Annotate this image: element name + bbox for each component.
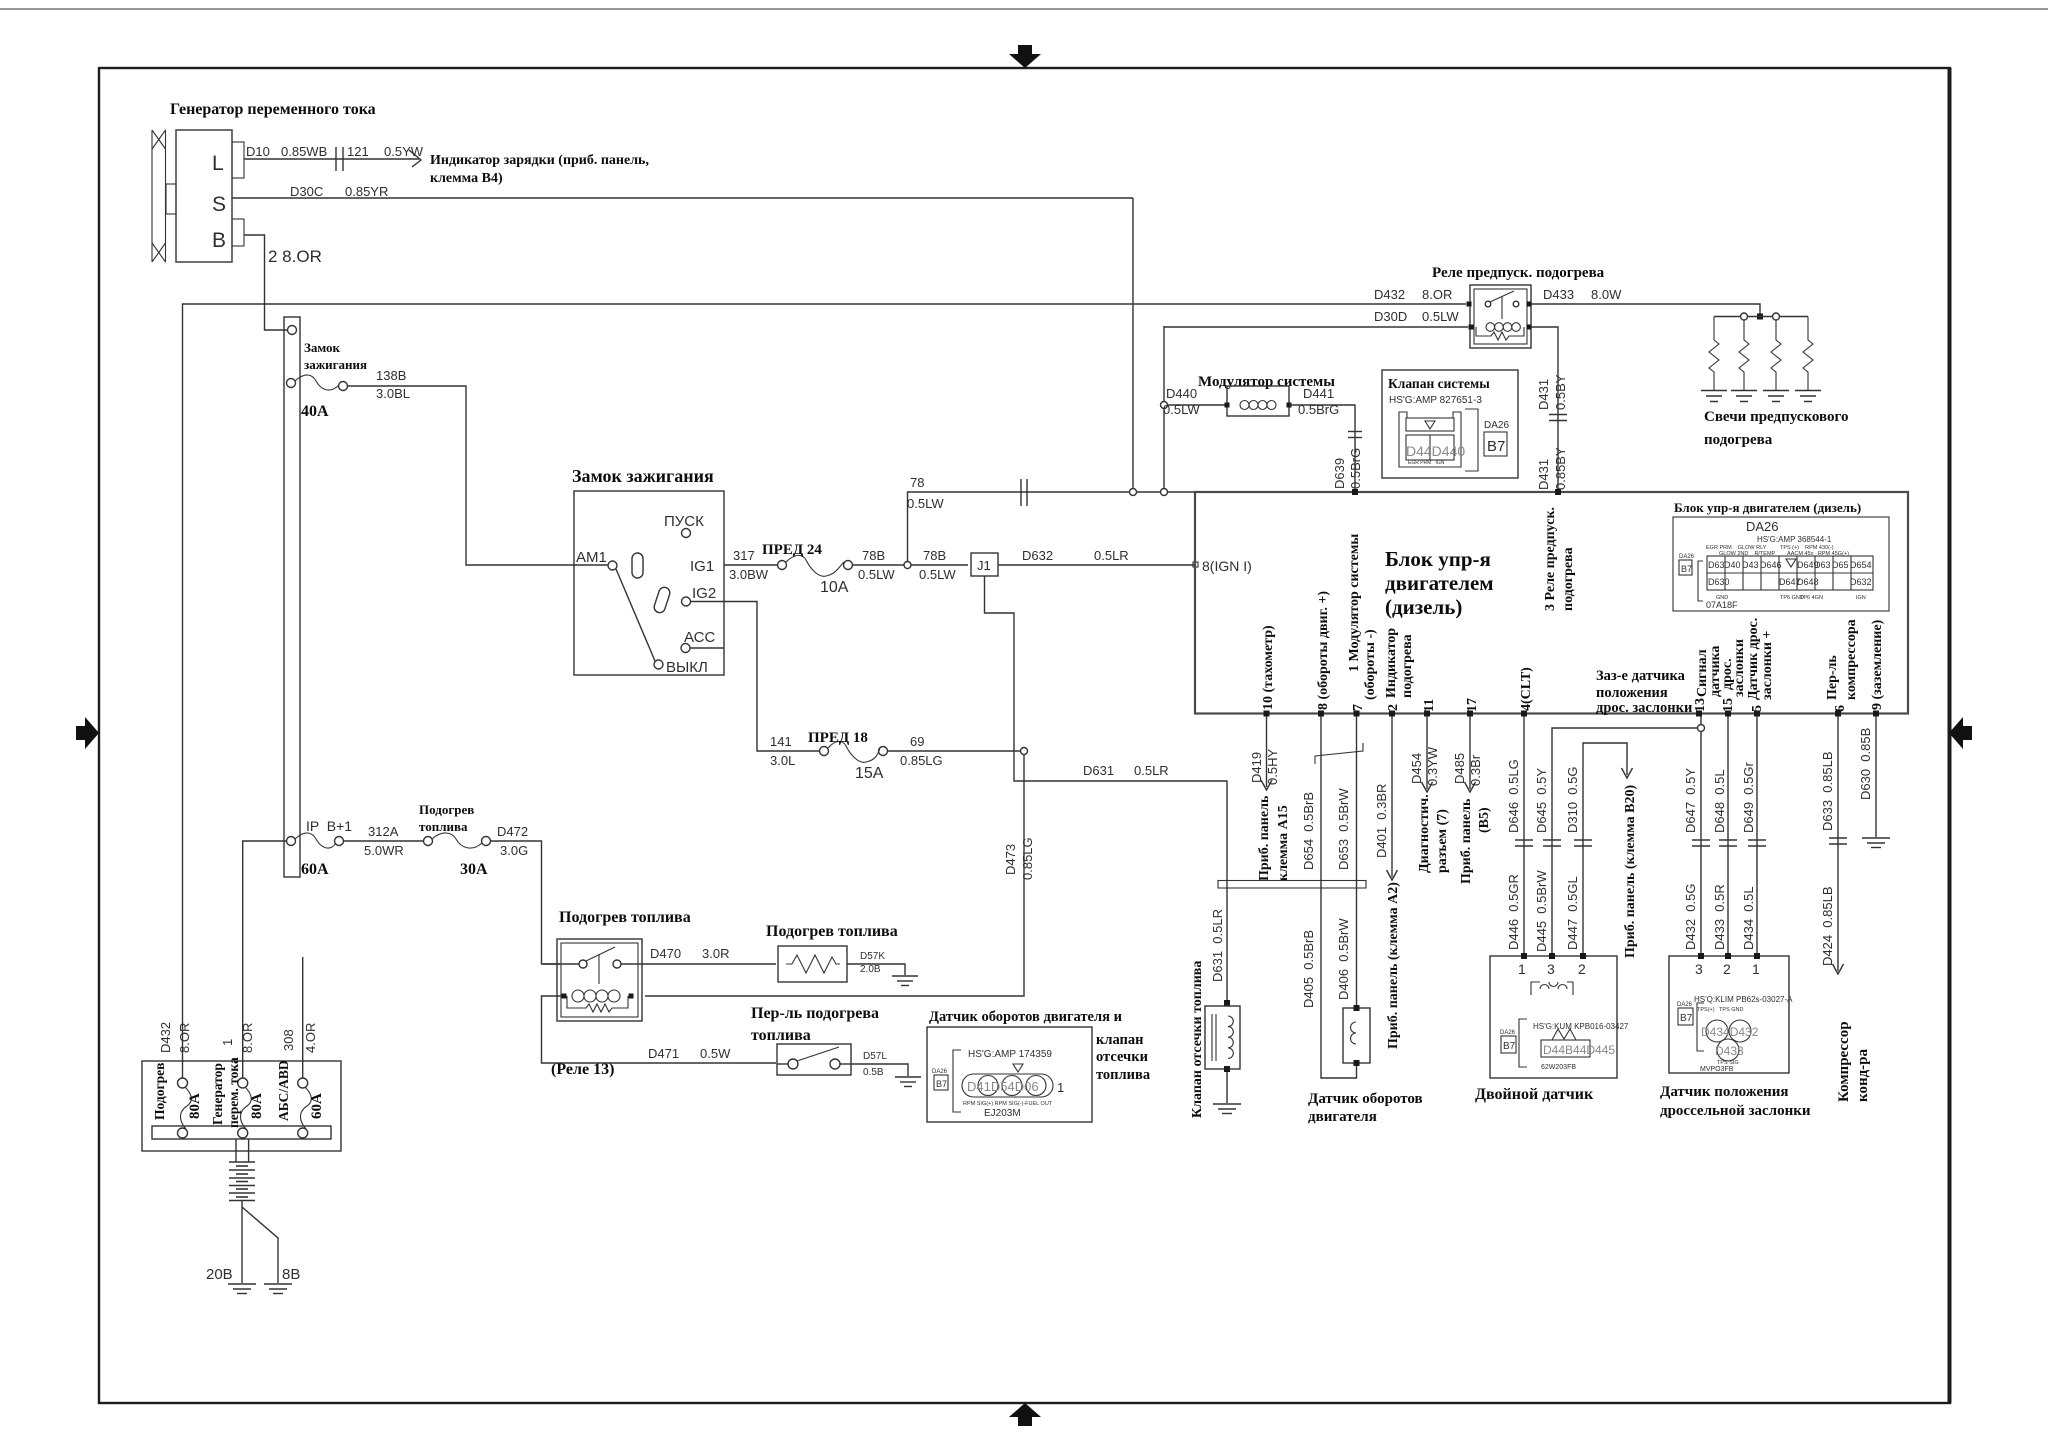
svg-text:D633 0.85LB: D633 0.85LB xyxy=(1820,751,1835,831)
svg-text:D472: D472 xyxy=(497,824,528,839)
svg-text:D649 0.5Gr: D649 0.5Gr xyxy=(1741,762,1756,833)
svg-text:Приб. панель (клемма B20): Приб. панель (клемма B20) xyxy=(1623,785,1638,958)
svg-text:(обороты -): (обороты -) xyxy=(1363,629,1378,700)
svg-text:Пер-ль: Пер-ль xyxy=(1825,655,1840,700)
svg-text:D431: D431 xyxy=(1536,379,1551,410)
svg-text:D631 0.5LR: D631 0.5LR xyxy=(1210,909,1225,982)
svg-text:D447 0.5GL: D447 0.5GL xyxy=(1565,876,1580,950)
svg-text:EGR PRM IGN: EGR PRM IGN xyxy=(1408,460,1445,466)
svg-text:HS'G:AMP 174359: HS'G:AMP 174359 xyxy=(968,1049,1052,1060)
svg-text:Датчик положения: Датчик положения xyxy=(1660,1084,1789,1100)
svg-text:DA26: DA26 xyxy=(932,1069,948,1075)
svg-text:0.5LW: 0.5LW xyxy=(858,567,895,582)
svg-text:6: 6 xyxy=(1833,705,1848,712)
svg-text:Индикатор: Индикатор xyxy=(1384,628,1399,698)
svg-text:1: 1 xyxy=(1752,961,1760,977)
svg-text:IG2: IG2 xyxy=(692,585,716,602)
svg-text:3.0G: 3.0G xyxy=(500,843,528,858)
svg-text:Двойной датчик: Двойной датчик xyxy=(1475,1086,1594,1103)
svg-text:Приб. панель (клемма A2): Приб. панель (клемма A2) xyxy=(1386,882,1401,1049)
svg-text:2: 2 xyxy=(1386,704,1401,711)
svg-text:АСС: АСС xyxy=(684,629,716,646)
svg-text:D63: D63 xyxy=(1708,560,1725,570)
svg-text:Клапан отсечки топлива: Клапан отсечки топлива xyxy=(1190,961,1205,1118)
svg-text:топлива: топлива xyxy=(751,1027,811,1044)
svg-text:4.OR: 4.OR xyxy=(303,1023,318,1053)
svg-text:D30C: D30C xyxy=(290,184,323,199)
svg-text:D432: D432 xyxy=(158,1022,173,1053)
svg-text:40A: 40A xyxy=(301,403,329,420)
svg-text:7: 7 xyxy=(1351,704,1366,711)
svg-text:подогрева: подогрева xyxy=(1704,432,1773,448)
svg-text:отсечки: отсечки xyxy=(1096,1049,1148,1065)
svg-text:10A: 10A xyxy=(820,579,849,596)
svg-text:Датчик оборотов: Датчик оборотов xyxy=(1308,1091,1423,1107)
svg-text:HS'G:KUM KPB016-03427: HS'G:KUM KPB016-03427 xyxy=(1533,1022,1629,1031)
svg-text:0.5LW: 0.5LW xyxy=(919,567,956,582)
svg-text:ПРЕД 24: ПРЕД 24 xyxy=(762,542,822,558)
svg-text:60A: 60A xyxy=(309,1093,325,1119)
svg-text:Подогрев топлива: Подогрев топлива xyxy=(559,909,691,926)
svg-text:D432 0.5G: D432 0.5G xyxy=(1683,884,1698,951)
svg-text:138B: 138B xyxy=(376,368,406,383)
svg-text:D440: D440 xyxy=(1166,386,1197,401)
svg-text:Генератор: Генератор xyxy=(210,1063,225,1125)
svg-text:1: 1 xyxy=(220,1039,235,1046)
svg-text:положения: положения xyxy=(1596,685,1668,701)
svg-text:D445 0.5BrW: D445 0.5BrW xyxy=(1534,870,1549,952)
svg-text:0.5LW: 0.5LW xyxy=(1422,309,1459,324)
svg-text:RPM SIG(+) RPM SIG(-)-FUEL OUT: RPM SIG(+) RPM SIG(-)-FUEL OUT xyxy=(963,1101,1053,1107)
svg-text:Заз-е датчика: Заз-е датчика xyxy=(1596,668,1686,684)
svg-text:дрос. заслонки: дрос. заслонки xyxy=(1596,700,1692,716)
svg-text:0.5HY: 0.5HY xyxy=(1265,749,1280,785)
svg-text:80A: 80A xyxy=(249,1093,265,1119)
svg-text:Подогрев топлива: Подогрев топлива xyxy=(766,923,898,940)
svg-text:Замок зажигания: Замок зажигания xyxy=(572,466,714,486)
svg-text:D433: D433 xyxy=(1715,1044,1744,1058)
svg-text:Индикатор зарядки (приб. панел: Индикатор зарядки (приб. панель, xyxy=(430,153,649,168)
svg-text:9 (заземление): 9 (заземление) xyxy=(1870,619,1885,710)
svg-text:D419: D419 xyxy=(1249,752,1264,783)
svg-text:3.0L: 3.0L xyxy=(770,753,795,768)
svg-text:D653 0.5BrW: D653 0.5BrW xyxy=(1336,788,1351,870)
svg-text:10 (тахометр): 10 (тахометр) xyxy=(1261,625,1276,710)
svg-text:разъем (7): разъем (7) xyxy=(1435,809,1450,873)
svg-text:0.85WB: 0.85WB xyxy=(281,144,327,159)
svg-text:DA26: DA26 xyxy=(1484,420,1509,431)
svg-text:15A: 15A xyxy=(855,765,884,782)
svg-text:D434D432: D434D432 xyxy=(1701,1025,1759,1039)
svg-text:D44B44D445: D44B44D445 xyxy=(1543,1043,1615,1057)
svg-text:перем. тока: перем. тока xyxy=(226,1057,241,1128)
svg-text:78B: 78B xyxy=(923,548,946,563)
svg-text:D10: D10 xyxy=(246,144,270,159)
svg-text:клапан: клапан xyxy=(1096,1032,1144,1048)
svg-text:3.0R: 3.0R xyxy=(702,946,729,961)
svg-text:D446 0.5GR: D446 0.5GR xyxy=(1506,874,1521,950)
svg-text:D63: D63 xyxy=(1814,560,1831,570)
svg-text:S: S xyxy=(212,193,226,216)
svg-text:Приб. панель: Приб. панель xyxy=(1257,795,1272,881)
svg-text:0.5BrG: 0.5BrG xyxy=(1348,448,1363,489)
svg-text:8.OR: 8.OR xyxy=(1422,287,1452,302)
svg-text:топлива: топлива xyxy=(419,819,468,834)
svg-text:0.85LG: 0.85LG xyxy=(900,753,943,768)
svg-text:D654: D654 xyxy=(1850,560,1872,570)
svg-text:0.5LW: 0.5LW xyxy=(1163,402,1200,417)
svg-text:DA26: DA26 xyxy=(1746,519,1779,534)
svg-text:07A18F: 07A18F xyxy=(1706,600,1738,610)
svg-text:312A: 312A xyxy=(368,824,399,839)
svg-text:B7: B7 xyxy=(1487,438,1505,455)
svg-text:0.85YR: 0.85YR xyxy=(345,184,388,199)
svg-text:IGN: IGN xyxy=(1856,595,1866,601)
svg-text:подогрева: подогрева xyxy=(1400,634,1415,698)
svg-text:0.5LR: 0.5LR xyxy=(1134,763,1169,778)
svg-text:D647 0.5Y: D647 0.5Y xyxy=(1683,768,1698,833)
svg-text:1: 1 xyxy=(1518,961,1526,977)
svg-text:D648: D648 xyxy=(1797,577,1819,587)
svg-text:69: 69 xyxy=(910,734,924,749)
svg-text:EJ203M: EJ203M xyxy=(984,1108,1021,1119)
svg-text:D485: D485 xyxy=(1452,753,1467,784)
svg-text:TPS(+) TPS GND: TPS(+) TPS GND xyxy=(1697,1007,1744,1013)
svg-text:78: 78 xyxy=(910,475,924,490)
svg-text:D40: D40 xyxy=(1724,560,1741,570)
svg-text:D470: D470 xyxy=(650,946,681,961)
svg-text:D431: D431 xyxy=(1536,459,1551,490)
svg-text:D648 0.5L: D648 0.5L xyxy=(1712,769,1727,833)
svg-text:D432: D432 xyxy=(1374,287,1405,302)
svg-text:15: 15 xyxy=(1721,698,1736,712)
svg-text:17: 17 xyxy=(1465,698,1480,712)
svg-text:0.5LW: 0.5LW xyxy=(907,496,944,511)
svg-text:D406 0.5BrW: D406 0.5BrW xyxy=(1336,918,1351,1000)
svg-text:308: 308 xyxy=(281,1029,296,1051)
svg-text:Подогрев: Подогрев xyxy=(419,802,474,817)
svg-text:3 Реле предпуск.: 3 Реле предпуск. xyxy=(1543,507,1558,611)
svg-text:D471: D471 xyxy=(648,1046,679,1061)
svg-text:Свечи предпускового: Свечи предпускового xyxy=(1704,409,1848,425)
svg-text:0.85BY: 0.85BY xyxy=(1553,447,1568,490)
svg-text:D434 0.5L: D434 0.5L xyxy=(1741,886,1756,950)
svg-text:HS'G:AMP 368544-1: HS'G:AMP 368544-1 xyxy=(1757,535,1832,544)
svg-text:141: 141 xyxy=(770,734,792,749)
svg-text:8 (обороты двиг. +): 8 (обороты двиг. +) xyxy=(1316,591,1331,710)
svg-text:0.5B: 0.5B xyxy=(863,1067,884,1078)
svg-text:30A: 30A xyxy=(460,861,488,878)
svg-text:B7: B7 xyxy=(936,1079,947,1089)
svg-text:3.0BL: 3.0BL xyxy=(376,386,410,401)
svg-text:D441: D441 xyxy=(1303,386,1334,401)
svg-text:TP6 4GN: TP6 4GN xyxy=(1800,595,1823,601)
svg-text:3: 3 xyxy=(1547,961,1555,977)
svg-text:8.0W: 8.0W xyxy=(1591,287,1622,302)
svg-text:топлива: топлива xyxy=(1096,1067,1151,1083)
svg-text:0.85LG: 0.85LG xyxy=(1020,837,1035,880)
svg-text:8B: 8B xyxy=(282,1266,300,1283)
svg-text:0.5BY: 0.5BY xyxy=(1553,374,1568,410)
svg-text:0.3YW: 0.3YW xyxy=(1425,746,1440,786)
svg-text:13: 13 xyxy=(1693,698,1708,712)
svg-text:4(CLT): 4(CLT) xyxy=(1519,667,1534,711)
svg-text:Диагностич.: Диагностич. xyxy=(1417,794,1432,873)
svg-text:D632: D632 xyxy=(1850,577,1872,587)
svg-text:D433: D433 xyxy=(1543,287,1574,302)
svg-text:зажигания: зажигания xyxy=(304,357,367,372)
svg-text:АМ1: АМ1 xyxy=(576,549,607,566)
svg-text:Блок упр-я двигателем (дизель): Блок упр-я двигателем (дизель) xyxy=(1674,500,1861,515)
svg-text:Подогрев: Подогрев xyxy=(152,1063,167,1120)
svg-text:Компрессор: Компрессор xyxy=(1836,1021,1852,1102)
svg-text:ПУСК: ПУСК xyxy=(664,513,704,530)
svg-text:2: 2 xyxy=(1723,961,1731,977)
svg-text:0.5W: 0.5W xyxy=(700,1046,731,1061)
svg-text:D654 0.5BrB: D654 0.5BrB xyxy=(1301,792,1316,870)
svg-text:D43: D43 xyxy=(1742,560,1759,570)
svg-text:компрессора: компрессора xyxy=(1844,619,1859,700)
svg-text:D401 0.3BR: D401 0.3BR xyxy=(1374,784,1389,858)
svg-text:D44D440: D44D440 xyxy=(1406,443,1465,459)
svg-text:80A: 80A xyxy=(187,1093,203,1119)
svg-text:1 Модулятор системы: 1 Модулятор системы xyxy=(1347,534,1362,672)
svg-text:D646 0.5LG: D646 0.5LG xyxy=(1506,759,1521,833)
svg-text:D41D54D06: D41D54D06 xyxy=(967,1079,1039,1094)
svg-text:двигателя: двигателя xyxy=(1308,1109,1377,1125)
svg-text:L: L xyxy=(212,152,224,175)
svg-text:D405 0.5BrB: D405 0.5BrB xyxy=(1301,930,1316,1008)
svg-text:D630: D630 xyxy=(1708,577,1730,587)
svg-text:78B: 78B xyxy=(862,548,885,563)
svg-text:(B5): (B5) xyxy=(1477,807,1492,833)
svg-text:D424 0.85LB: D424 0.85LB xyxy=(1820,886,1835,966)
svg-text:D433 0.5R: D433 0.5R xyxy=(1712,884,1727,950)
svg-text:дроссельной заслонки: дроссельной заслонки xyxy=(1660,1103,1811,1119)
svg-text:D645 0.5Y: D645 0.5Y xyxy=(1534,768,1549,833)
svg-text:121: 121 xyxy=(347,144,369,159)
svg-text:Реле предпуск. подогрева: Реле предпуск. подогрева xyxy=(1432,265,1605,281)
svg-text:Замок: Замок xyxy=(304,340,341,355)
svg-text:HS'Q:KLIM PB62s-03027-A: HS'Q:KLIM PB62s-03027-A xyxy=(1694,995,1793,1004)
svg-text:подогрева: подогрева xyxy=(1561,547,1576,611)
svg-text:B7: B7 xyxy=(1681,564,1692,574)
svg-text:B7: B7 xyxy=(1680,1013,1693,1024)
svg-text:J1: J1 xyxy=(977,558,991,573)
svg-text:D630 0.85B: D630 0.85B xyxy=(1858,728,1873,800)
svg-text:D631: D631 xyxy=(1083,763,1114,778)
svg-text:8.OR: 8.OR xyxy=(240,1023,255,1053)
svg-text:HS'G:AMP 827651-3: HS'G:AMP 827651-3 xyxy=(1389,395,1482,406)
svg-text:Приб. панель: Приб. панель xyxy=(1459,798,1474,884)
svg-text:клемма A15: клемма A15 xyxy=(1276,805,1291,881)
svg-text:D65: D65 xyxy=(1832,560,1849,570)
svg-text:0.5LR: 0.5LR xyxy=(1094,548,1129,563)
svg-text:0.3Br: 0.3Br xyxy=(1468,754,1483,786)
svg-text:DA26: DA26 xyxy=(1677,1002,1693,1008)
svg-text:D454: D454 xyxy=(1409,753,1424,784)
svg-text:IP B+1: IP B+1 xyxy=(306,818,352,834)
svg-text:заслонки: заслонки xyxy=(1732,639,1747,697)
svg-text:IG1: IG1 xyxy=(690,558,714,575)
svg-text:1: 1 xyxy=(1057,1080,1064,1095)
svg-text:2 8.OR: 2 8.OR xyxy=(268,247,322,266)
svg-text:0.5BrG: 0.5BrG xyxy=(1298,402,1339,417)
svg-text:B7: B7 xyxy=(1503,1041,1516,1052)
svg-text:2: 2 xyxy=(1578,961,1586,977)
svg-text:АБС/ABD: АБС/ABD xyxy=(276,1060,291,1121)
svg-text:клемма B4): клемма B4) xyxy=(430,171,503,186)
svg-text:Блок упр-я: Блок упр-я xyxy=(1385,547,1491,571)
svg-text:ПРЕД 18: ПРЕД 18 xyxy=(808,730,868,746)
svg-text:MVPO3FB: MVPO3FB xyxy=(1700,1066,1734,1073)
svg-text:ВЫКЛ: ВЫКЛ xyxy=(666,659,708,676)
svg-text:DA26: DA26 xyxy=(1679,554,1695,560)
svg-text:3: 3 xyxy=(1695,961,1703,977)
svg-text:D30D: D30D xyxy=(1374,309,1407,324)
svg-text:Датчик оборотов двигателя и: Датчик оборотов двигателя и xyxy=(929,1009,1122,1025)
svg-text:3.0BW: 3.0BW xyxy=(729,567,769,582)
svg-text:317: 317 xyxy=(733,548,755,563)
svg-text:D632: D632 xyxy=(1022,548,1053,563)
svg-text:D639: D639 xyxy=(1332,458,1347,489)
svg-text:5: 5 xyxy=(1750,705,1765,712)
svg-text:5.0WR: 5.0WR xyxy=(364,843,404,858)
svg-text:8(IGN I): 8(IGN I) xyxy=(1202,558,1252,574)
svg-text:Пер-ль подогрева: Пер-ль подогрева xyxy=(751,1005,879,1022)
svg-text:D646: D646 xyxy=(1760,560,1782,570)
svg-text:B: B xyxy=(212,229,226,252)
svg-text:D473: D473 xyxy=(1003,844,1018,875)
svg-text:D310 0.5G: D310 0.5G xyxy=(1565,767,1580,834)
svg-text:Генератор переменного тока: Генератор переменного тока xyxy=(170,101,376,118)
svg-text:Клапан системы: Клапан системы xyxy=(1388,376,1490,391)
svg-text:двигателем: двигателем xyxy=(1385,571,1494,595)
svg-text:20B: 20B xyxy=(206,1266,233,1283)
svg-text:D57L: D57L xyxy=(863,1051,887,1062)
svg-text:62W203FB: 62W203FB xyxy=(1541,1064,1576,1071)
svg-text:D57K: D57K xyxy=(860,951,885,962)
svg-text:2.0B: 2.0B xyxy=(860,964,881,975)
svg-text:заслонки +: заслонки + xyxy=(1760,631,1775,700)
svg-text:11: 11 xyxy=(1422,699,1437,712)
svg-text:8.OR: 8.OR xyxy=(177,1023,192,1053)
svg-text:конд-ра: конд-ра xyxy=(1855,1048,1871,1102)
svg-text:60A: 60A xyxy=(301,861,329,878)
svg-text:Датчик дрос.: Датчик дрос. xyxy=(1746,618,1761,700)
svg-text:DA26: DA26 xyxy=(1500,1030,1516,1036)
svg-text:(дизель): (дизель) xyxy=(1385,595,1462,619)
